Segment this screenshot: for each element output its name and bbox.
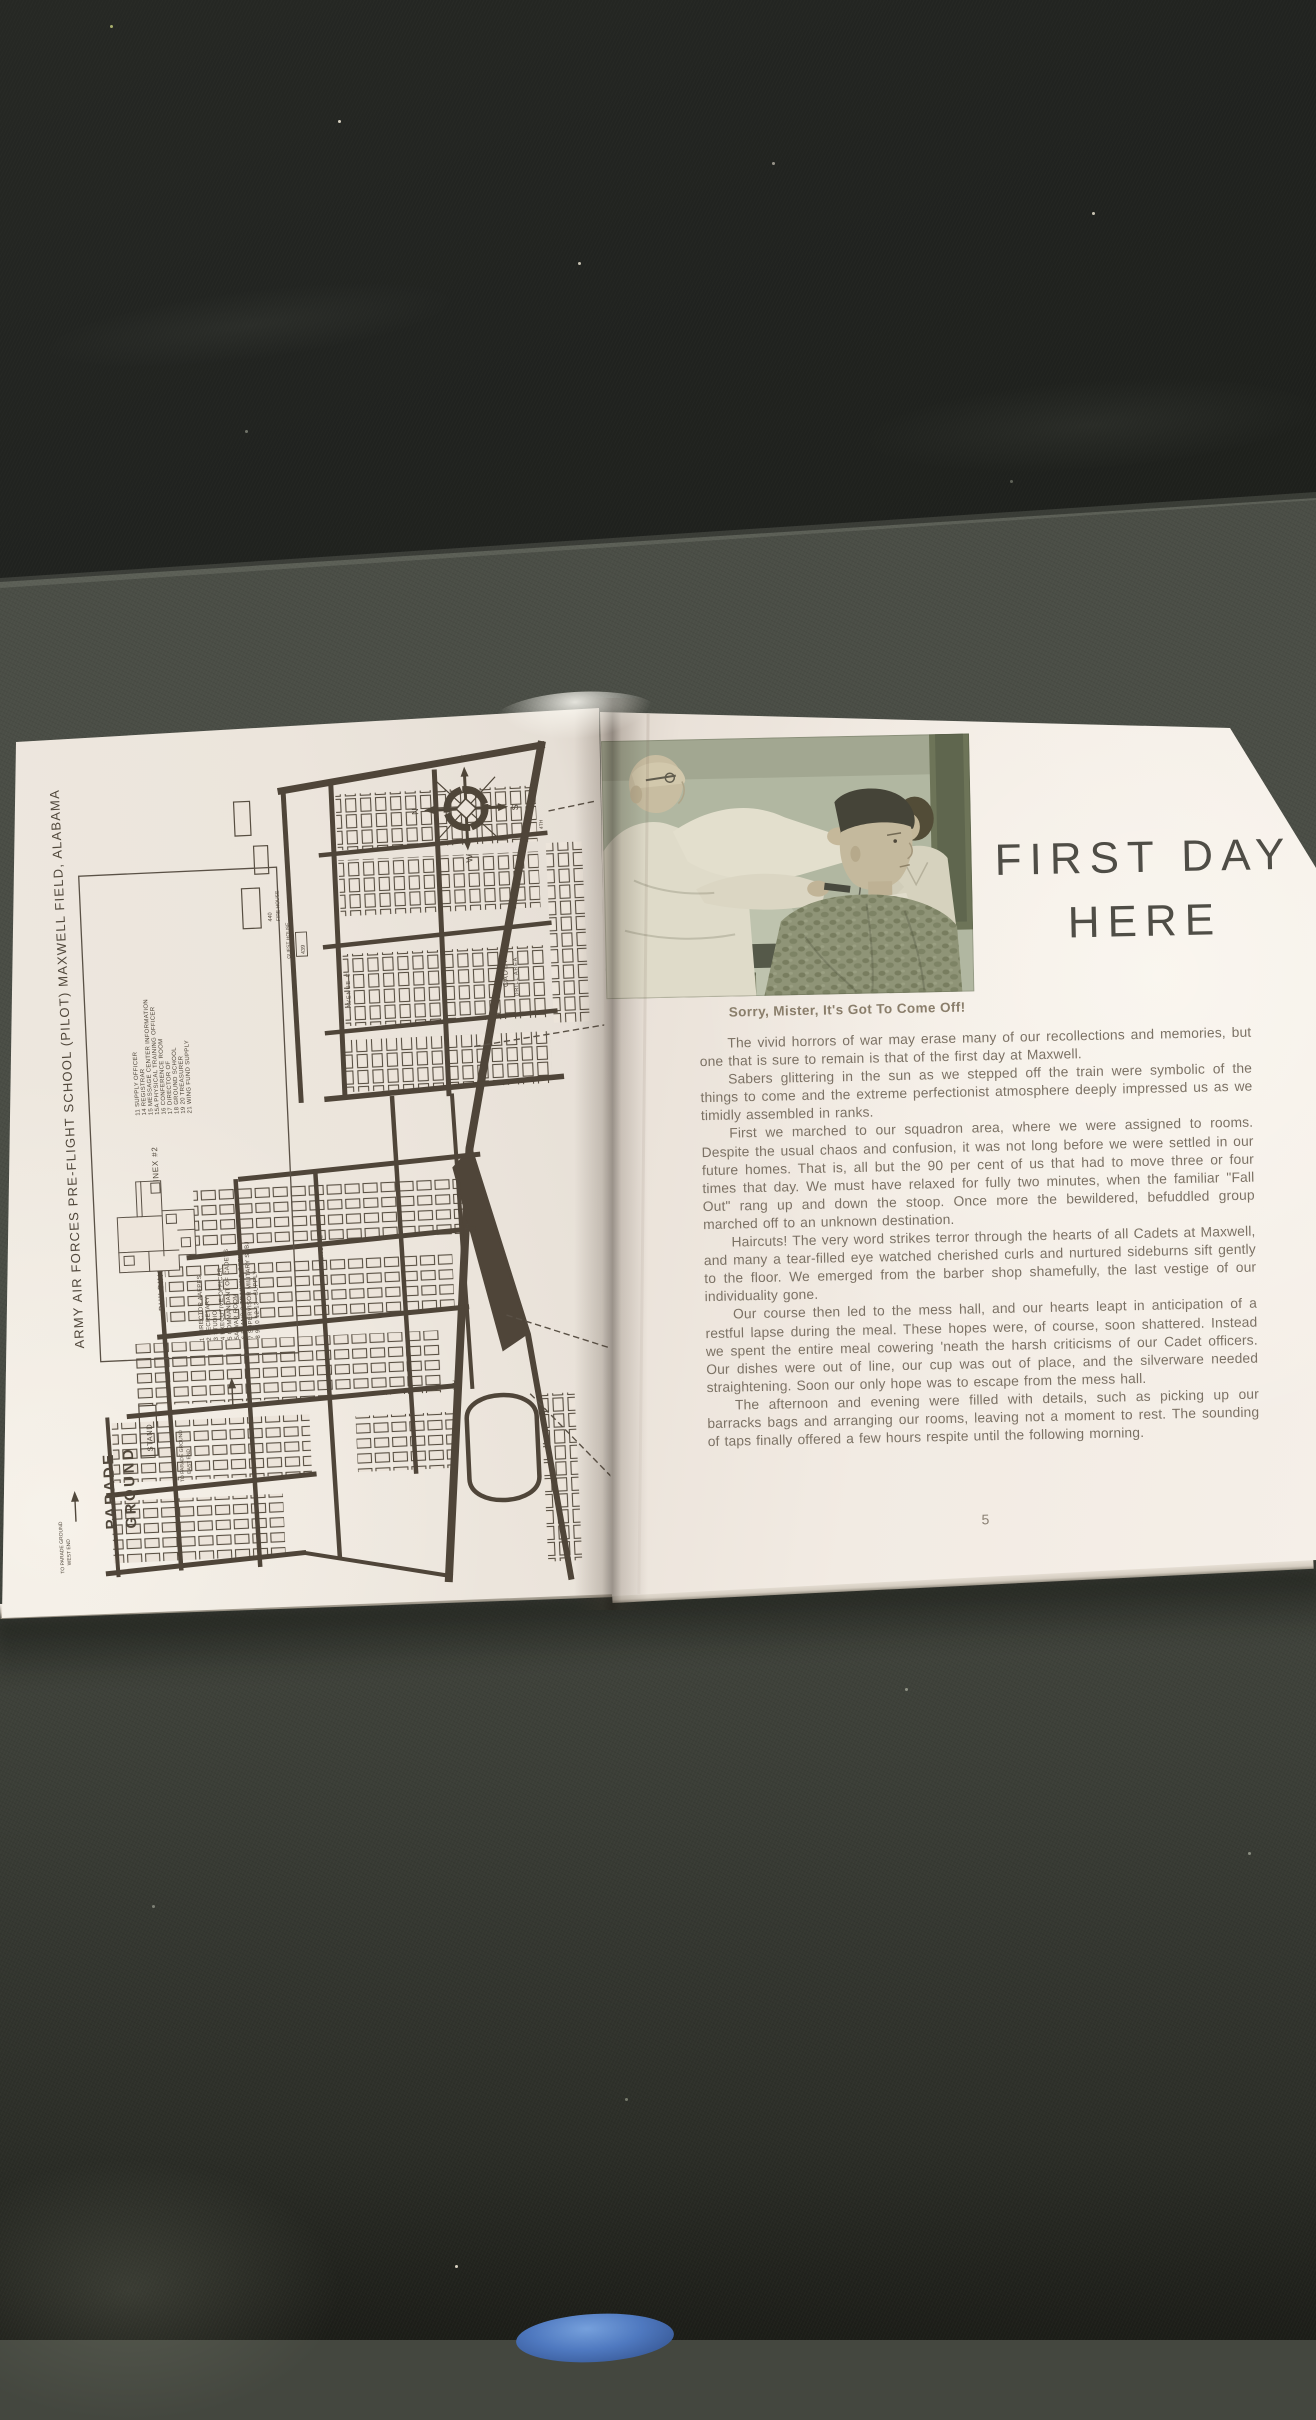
to-parade-west-label: TO PARADE GROUND [58,1521,66,1574]
dust-specks [0,0,3,3]
chapter-title-line2: HERE [976,886,1313,957]
parade-ground-label: PARADE [100,1452,120,1530]
compass-e: E [460,754,470,760]
right-page: FIRST DAY HERE Sorry, Mister, It's Got T… [598,706,1316,1606]
paragraph: Our course then led to the mess hall, an… [705,1295,1259,1397]
chapter-title: FIRST DAY HERE [975,822,1314,957]
street-tag: 6TH [465,1223,471,1233]
page-number: 5 [709,1506,1261,1534]
paragraph: The afternoon and evening were filled wi… [707,1385,1260,1451]
right-page-content: FIRST DAY HERE Sorry, Mister, It's Got T… [596,692,1316,1603]
maxwell-field-map: ARMY AIR FORCES PRE-FLIGHT SCHOOL (PILOT… [0,704,620,1628]
street-tag: 5TH [469,1149,475,1159]
left-page-map: ARMY AIR FORCES PRE-FLIGHT SCHOOL (PILOT… [0,704,620,1628]
guest-house-number: 439 [301,945,307,954]
compass-n: N [410,808,420,815]
fabric-corner-highlight [0,2160,340,2420]
compass-s: S [510,804,520,810]
street-tag: 4TH [539,819,545,829]
map-title-vertical: ARMY AIR FORCES PRE-FLIGHT SCHOOL (PILOT… [47,789,87,1349]
compass-w: W [464,853,474,862]
to-parade-west-label: WEST END [66,1539,73,1566]
street-tag: 7TH [459,1301,465,1311]
stand-label: STAND [145,1423,155,1451]
to-parade-east-label: EAST END [186,1448,193,1474]
fire-house-label: FIRE HOUSE [275,890,282,921]
paragraph: First we marched to our squadron area, w… [701,1114,1255,1234]
cadet-drill-area-label: CADET [502,958,510,987]
paragraph: Haircuts! The very word strikes terror t… [703,1223,1256,1307]
body-text: The vivid horrors of war may erase many … [699,1024,1260,1452]
street-tag: 8TH [452,1380,458,1390]
fire-house-number: 440 [268,912,274,921]
photo-caption: Sorry, Mister, It's Got To Come Off! [729,1000,966,1020]
legend-building-footprint [116,1179,197,1272]
barbershop-photo [601,733,974,999]
chapter-title-line1: FIRST DAY [975,822,1312,893]
